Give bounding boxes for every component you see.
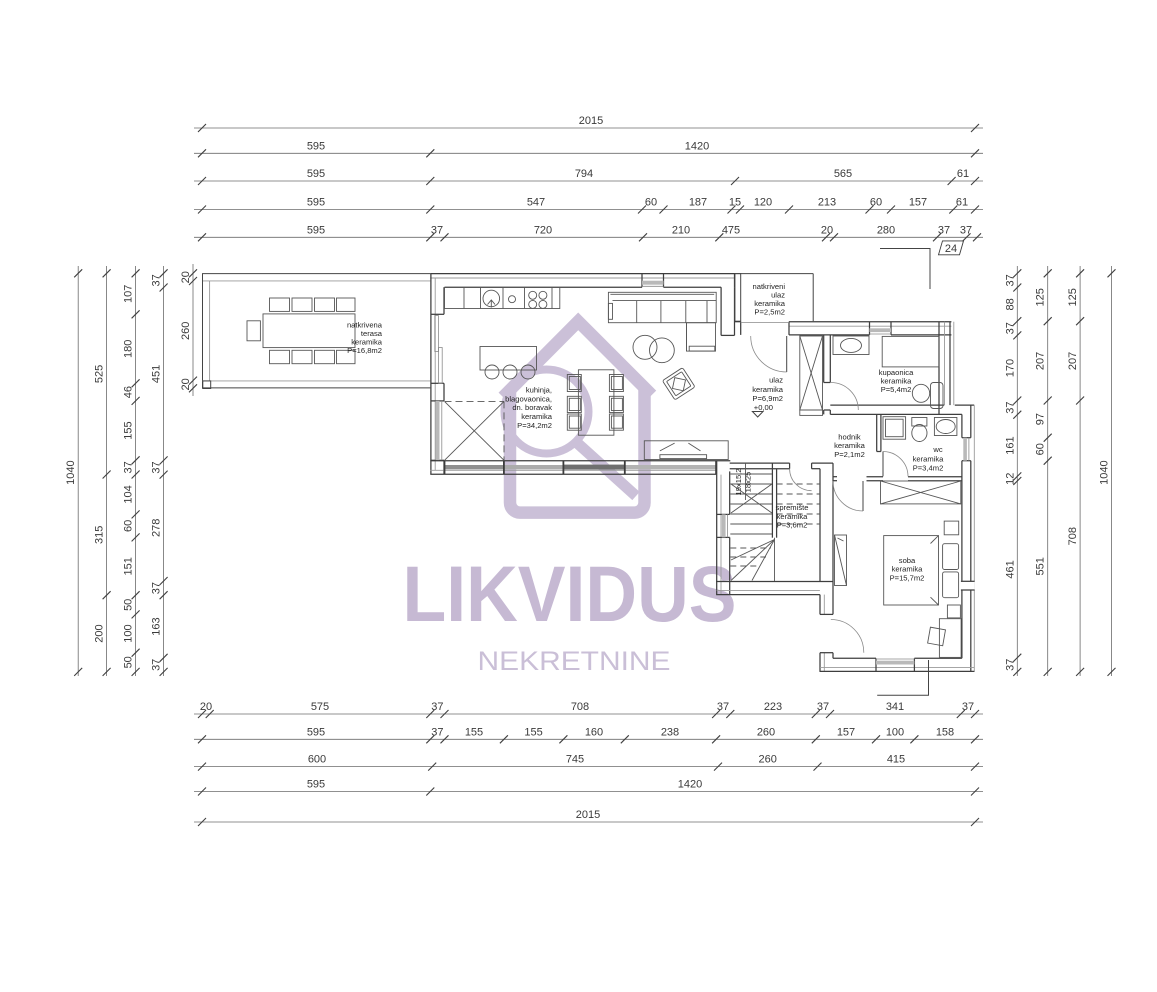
svg-text:1040: 1040 xyxy=(65,460,77,484)
svg-text:187: 187 xyxy=(689,197,707,209)
svg-text:keramika: keramika xyxy=(892,565,924,574)
svg-text:wc: wc xyxy=(932,445,942,454)
svg-text:37: 37 xyxy=(151,461,163,473)
svg-text:794: 794 xyxy=(575,168,593,180)
svg-text:P=2,1m2: P=2,1m2 xyxy=(834,450,865,459)
svg-text:20: 20 xyxy=(821,224,833,236)
svg-text:260: 260 xyxy=(759,754,777,766)
svg-text:161: 161 xyxy=(1004,436,1016,454)
svg-text:104: 104 xyxy=(123,485,135,503)
svg-text:551: 551 xyxy=(1035,557,1047,575)
svg-text:708: 708 xyxy=(1067,527,1079,545)
svg-text:157: 157 xyxy=(909,197,927,209)
svg-text:37: 37 xyxy=(938,224,950,236)
svg-text:37: 37 xyxy=(151,659,163,671)
svg-text:207: 207 xyxy=(1067,352,1079,370)
svg-text:595: 595 xyxy=(307,197,325,209)
svg-text:151: 151 xyxy=(123,557,135,575)
svg-text:207: 207 xyxy=(1035,352,1047,370)
svg-text:37: 37 xyxy=(1004,322,1016,334)
svg-text:keramika: keramika xyxy=(913,455,945,464)
svg-text:37: 37 xyxy=(1004,401,1016,413)
svg-text:180: 180 xyxy=(123,340,135,358)
svg-text:100: 100 xyxy=(886,726,904,738)
svg-text:163: 163 xyxy=(151,617,163,635)
svg-text:60: 60 xyxy=(1035,443,1047,455)
svg-text:2015: 2015 xyxy=(579,115,603,127)
svg-text:157: 157 xyxy=(837,726,855,738)
svg-text:keramika: keramika xyxy=(777,512,809,521)
svg-text:1420: 1420 xyxy=(678,779,702,791)
svg-text:170: 170 xyxy=(1004,359,1016,377)
svg-text:60: 60 xyxy=(645,197,657,209)
svg-text:37: 37 xyxy=(817,701,829,713)
svg-text:315: 315 xyxy=(94,526,106,544)
svg-text:46: 46 xyxy=(123,386,135,398)
svg-text:415: 415 xyxy=(887,754,905,766)
svg-text:12: 12 xyxy=(1004,473,1016,485)
svg-text:P=16,8m2: P=16,8m2 xyxy=(347,346,382,355)
svg-text:P=34,2m2: P=34,2m2 xyxy=(517,421,552,430)
svg-text:37: 37 xyxy=(151,274,163,286)
svg-text:hodnik: hodnik xyxy=(838,433,861,442)
svg-text:50: 50 xyxy=(123,599,135,611)
svg-text:125: 125 xyxy=(1035,288,1047,306)
svg-text:260: 260 xyxy=(180,322,192,340)
svg-text:280: 280 xyxy=(877,224,895,236)
svg-text:37: 37 xyxy=(431,224,443,236)
svg-text:keramika: keramika xyxy=(521,412,553,421)
svg-text:213: 213 xyxy=(818,197,836,209)
svg-text:37: 37 xyxy=(431,726,443,738)
svg-text:61: 61 xyxy=(957,168,969,180)
svg-text:278: 278 xyxy=(151,519,163,537)
svg-text:61: 61 xyxy=(956,197,968,209)
svg-text:37: 37 xyxy=(123,461,135,473)
svg-text:125: 125 xyxy=(1067,288,1079,306)
svg-text:60: 60 xyxy=(123,520,135,532)
svg-text:155: 155 xyxy=(465,726,483,738)
svg-text:595: 595 xyxy=(307,224,325,236)
svg-text:37: 37 xyxy=(962,701,974,713)
svg-text:soba: soba xyxy=(899,556,916,565)
svg-text:600: 600 xyxy=(308,754,326,766)
svg-text:spremište: spremište xyxy=(776,503,809,512)
svg-text:NEKRETNINE: NEKRETNINE xyxy=(478,646,671,676)
svg-text:595: 595 xyxy=(307,779,325,791)
svg-text:1420: 1420 xyxy=(685,140,709,152)
svg-text:37: 37 xyxy=(151,582,163,594)
svg-text:341: 341 xyxy=(886,701,904,713)
svg-text:P=6,9m2: P=6,9m2 xyxy=(752,394,783,403)
svg-text:100: 100 xyxy=(123,624,135,642)
svg-text:210: 210 xyxy=(672,224,690,236)
svg-text:708: 708 xyxy=(571,701,589,713)
svg-text:P=15,7m2: P=15,7m2 xyxy=(890,573,925,582)
svg-text:223: 223 xyxy=(764,701,782,713)
svg-text:P=2,5m2: P=2,5m2 xyxy=(754,308,785,317)
svg-text:158: 158 xyxy=(936,726,954,738)
svg-text:451: 451 xyxy=(151,365,163,383)
svg-text:blagovaonica,: blagovaonica, xyxy=(505,394,552,403)
svg-text:97: 97 xyxy=(1035,413,1047,425)
svg-text:kuhinja,: kuhinja, xyxy=(526,386,552,395)
svg-text:200: 200 xyxy=(94,624,106,642)
svg-text:88: 88 xyxy=(1004,298,1016,310)
svg-text:238: 238 xyxy=(661,726,679,738)
svg-text:20: 20 xyxy=(180,378,192,390)
svg-text:2015: 2015 xyxy=(576,809,600,821)
svg-text:P=5,4m2: P=5,4m2 xyxy=(881,385,912,394)
svg-text:525: 525 xyxy=(94,365,106,383)
svg-text:keramika: keramika xyxy=(752,385,784,394)
svg-text:P=3,6m2: P=3,6m2 xyxy=(777,521,808,530)
svg-text:ulaz: ulaz xyxy=(769,376,783,385)
svg-text:155: 155 xyxy=(524,726,542,738)
svg-text:37: 37 xyxy=(717,701,729,713)
svg-text:37: 37 xyxy=(960,224,972,236)
svg-text:595: 595 xyxy=(307,726,325,738)
svg-text:155: 155 xyxy=(123,421,135,439)
svg-text:19x15,2: 19x15,2 xyxy=(734,468,743,495)
svg-text:547: 547 xyxy=(527,197,545,209)
svg-text:50: 50 xyxy=(123,656,135,668)
svg-text:595: 595 xyxy=(307,140,325,152)
svg-text:565: 565 xyxy=(834,168,852,180)
svg-text:575: 575 xyxy=(311,701,329,713)
svg-text:475: 475 xyxy=(722,224,740,236)
svg-text:120: 120 xyxy=(754,197,772,209)
svg-text:745: 745 xyxy=(566,754,584,766)
svg-text:60: 60 xyxy=(870,197,882,209)
svg-text:461: 461 xyxy=(1004,560,1016,578)
svg-text:20: 20 xyxy=(180,271,192,283)
svg-text:595: 595 xyxy=(307,168,325,180)
svg-text:dn. boravak: dn. boravak xyxy=(512,403,552,412)
svg-text:+0,00: +0,00 xyxy=(754,403,773,412)
svg-text:720: 720 xyxy=(534,224,552,236)
svg-text:160: 160 xyxy=(585,726,603,738)
svg-text:37: 37 xyxy=(431,701,443,713)
svg-text:20: 20 xyxy=(200,701,212,713)
svg-text:37: 37 xyxy=(1004,659,1016,671)
svg-text:37: 37 xyxy=(1004,274,1016,286)
svg-text:LIKVIDUS: LIKVIDUS xyxy=(403,549,737,638)
svg-text:P=3,4m2: P=3,4m2 xyxy=(913,464,944,473)
svg-text:15: 15 xyxy=(729,197,741,209)
svg-text:keramika: keramika xyxy=(834,441,866,450)
svg-text:107: 107 xyxy=(123,285,135,303)
svg-text:24: 24 xyxy=(945,243,957,255)
svg-text:260: 260 xyxy=(757,726,775,738)
svg-text:18x25: 18x25 xyxy=(744,472,753,493)
svg-text:1040: 1040 xyxy=(1099,460,1111,484)
